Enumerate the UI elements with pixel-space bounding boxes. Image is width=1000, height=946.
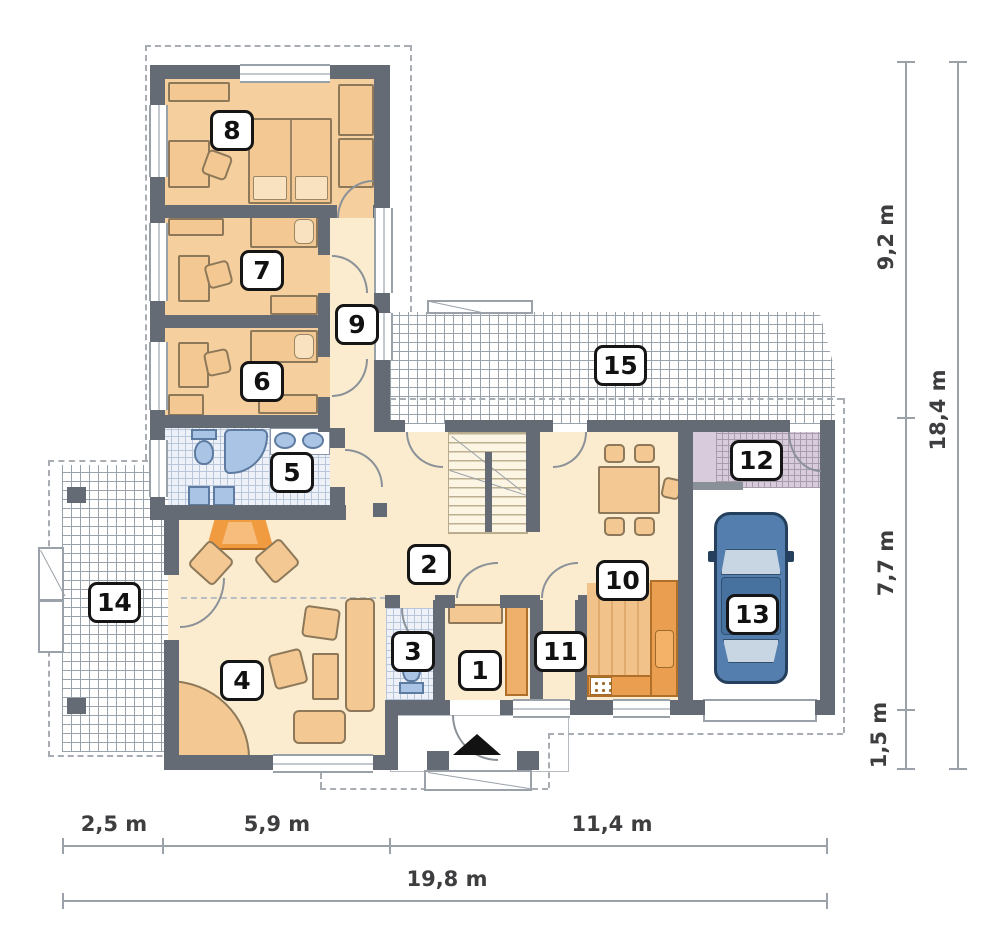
room-label-8: 8 — [210, 110, 254, 151]
washer-1 — [188, 486, 210, 506]
dim-tick-b5 — [62, 893, 64, 909]
dim-tick-b3 — [389, 838, 391, 854]
dim-tick-b6 — [826, 893, 828, 909]
room7-desk — [178, 255, 210, 302]
dim-tick-r5 — [949, 61, 967, 63]
window-room8-left — [149, 105, 168, 177]
room-label-1: 1 — [458, 650, 502, 691]
room-label-10: 10 — [596, 560, 649, 601]
corridor-wall-a — [318, 218, 330, 255]
kitchen-sink — [655, 630, 674, 668]
roof-outline-top — [145, 45, 410, 47]
car-rear-window — [723, 639, 779, 663]
dash-bottom-right — [548, 733, 843, 735]
window-room6-left — [149, 342, 168, 410]
dash-terrace15-eave — [390, 398, 843, 400]
dim-line-bottom-outer — [63, 900, 827, 902]
body-bottom-s2 — [500, 700, 513, 715]
dim-line-right-inner — [905, 62, 907, 770]
room1-wardrobe — [505, 604, 528, 696]
room-label-4: 4 — [220, 660, 264, 701]
dim-tick-b1 — [62, 838, 64, 854]
porch-left-wall — [385, 700, 398, 770]
room-label-14: 14 — [88, 582, 141, 623]
living-sofa-vertical — [345, 598, 375, 712]
dim-tick-b4 — [826, 838, 828, 854]
bath-east-wall-b — [330, 487, 345, 507]
terrace14-post-bottom — [67, 698, 86, 714]
body-top-wall-s0 — [390, 420, 405, 432]
stair-wall — [526, 432, 540, 532]
hall-rooms-wall-s0 — [385, 595, 400, 608]
wall-room8-bottom — [150, 205, 337, 218]
living-sofa-horizontal — [293, 710, 346, 744]
window-room7-left — [149, 223, 168, 301]
terrace14-dash-top — [48, 460, 148, 462]
room-label-6: 6 — [240, 361, 284, 402]
dining-chair-2 — [634, 444, 655, 463]
body-bottom-s4 — [670, 700, 705, 715]
dim-label-5-9: 5,9 m — [237, 810, 317, 838]
window-room8-top — [240, 64, 330, 83]
dim-label-11-4: 11,4 m — [567, 810, 657, 838]
room-label-15: 15 — [594, 345, 647, 386]
living-bottom-s1 — [164, 755, 273, 770]
living-coffee-table — [312, 653, 339, 700]
bath-east-wall-a — [330, 428, 345, 448]
room6-chair — [203, 348, 233, 378]
window-bath-left — [149, 440, 168, 497]
dim-tick-b2 — [162, 838, 164, 854]
terrace14-step-2 — [38, 600, 64, 653]
washer-2 — [213, 486, 235, 506]
body-bottom-s5 — [815, 700, 835, 715]
dim-label-9-2: 9,2 m — [861, 209, 911, 265]
room-label-7: 7 — [240, 250, 284, 291]
stair-divider — [485, 452, 492, 532]
dim-tick-r4 — [897, 768, 915, 770]
room7-dresser — [270, 295, 318, 315]
dim-label-7-7: 7,7 m — [861, 535, 911, 591]
room7-pillow — [294, 219, 314, 244]
room8-pillow-1 — [253, 176, 287, 200]
window-corridor-right-a — [374, 208, 393, 293]
corridor-wall-b — [318, 293, 330, 357]
body-top-wall-s1 — [445, 420, 553, 432]
room6-shelf — [168, 394, 204, 416]
dim-label-18-4: 18,4 m — [913, 375, 963, 445]
car-mirror-left — [708, 551, 716, 562]
toilet5-tank — [191, 429, 217, 440]
room-label-5: 5 — [270, 452, 314, 493]
utility-garage-partition — [693, 482, 743, 490]
dash-porch-right — [548, 733, 550, 788]
wall-room6-bath — [150, 415, 330, 428]
porch-post-right — [517, 751, 539, 770]
room-label-11: 11 — [534, 631, 587, 672]
body-bottom-s3 — [570, 700, 613, 715]
dim-line-bottom-inner — [63, 845, 827, 847]
roof-outline-left — [145, 45, 147, 460]
dining-chair-4 — [634, 517, 655, 536]
window-kitchen-bottom — [613, 699, 670, 718]
porch-post-left — [427, 751, 449, 770]
toilet3-tank — [399, 682, 424, 694]
roof-outline-wing-right — [410, 45, 412, 312]
body-right-wall — [820, 420, 835, 715]
room-label-2: 2 — [407, 544, 451, 585]
dim-tick-r1 — [897, 61, 915, 63]
sink-right — [302, 432, 324, 449]
garage-door — [703, 699, 817, 722]
living-west-wall-b — [164, 640, 179, 770]
wall-room7-room6 — [150, 315, 330, 328]
room7-shelf — [168, 218, 224, 236]
living-armchair-top — [301, 605, 341, 642]
room1-shelf — [448, 604, 503, 624]
dining-chair-1 — [604, 444, 625, 463]
room8-dresser — [168, 82, 230, 102]
room8-pillow-2 — [295, 176, 328, 200]
sink-left — [274, 432, 296, 449]
floor-plan: 1 2 3 4 5 6 7 8 9 10 11 12 13 14 15 9,2 … — [0, 0, 1000, 946]
room6-pillow — [294, 334, 314, 359]
dining-chair-3 — [604, 517, 625, 536]
car-mirror-right — [786, 551, 794, 562]
dim-tick-r6 — [949, 768, 967, 770]
room-label-9: 9 — [335, 304, 379, 345]
living-west-wall-a — [164, 510, 179, 575]
room-label-12: 12 — [730, 440, 783, 481]
dim-label-2-5: 2,5 m — [74, 810, 154, 838]
window-room11-bottom — [513, 699, 570, 718]
hall-column — [373, 503, 387, 517]
room-label-13: 13 — [726, 594, 779, 635]
dim-label-1-5: 1,5 m — [854, 707, 904, 763]
dim-label-19-8: 19,8 m — [402, 864, 492, 894]
room8-bed-split — [290, 120, 292, 202]
kitchen-garage-wall — [678, 420, 693, 715]
bath-bottom-wall — [150, 505, 346, 520]
toilet5-bowl — [194, 440, 214, 465]
kitchen-stove — [590, 677, 612, 695]
car-windshield — [721, 549, 781, 575]
entrance-arrow-icon — [453, 734, 501, 755]
dining-table — [598, 466, 660, 514]
terrace14-post-top — [67, 487, 86, 503]
body-bottom-s1 — [390, 700, 450, 715]
room-label-3: 3 — [391, 631, 435, 672]
window-living-bottom — [273, 754, 373, 773]
room8-wardrobe-a — [338, 84, 374, 136]
dash-right-eave — [843, 398, 845, 733]
